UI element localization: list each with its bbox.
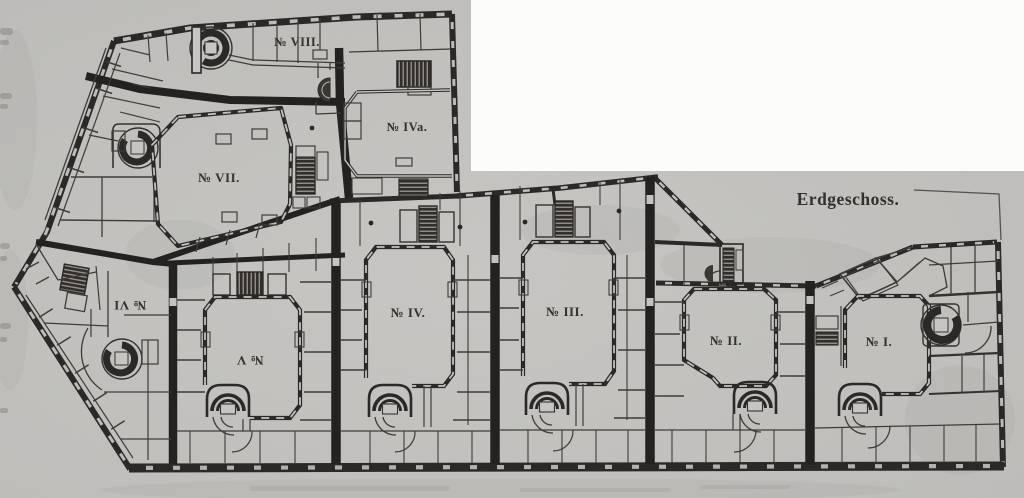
svg-text:№ VII.: № VII. — [198, 170, 240, 185]
svg-text:№ VIII.: № VIII. — [274, 35, 320, 49]
svg-text:№ IV.: № IV. — [391, 305, 426, 320]
svg-text:№ VI: № VI — [114, 298, 147, 313]
svg-text:Erdgeschoss.: Erdgeschoss. — [797, 189, 900, 209]
svg-text:№ IVa.: № IVa. — [387, 120, 428, 134]
svg-text:№ II.: № II. — [710, 333, 742, 348]
svg-text:№ I.: № I. — [866, 334, 893, 349]
svg-text:№ V: № V — [236, 353, 263, 368]
svg-text:№ III.: № III. — [546, 304, 584, 319]
